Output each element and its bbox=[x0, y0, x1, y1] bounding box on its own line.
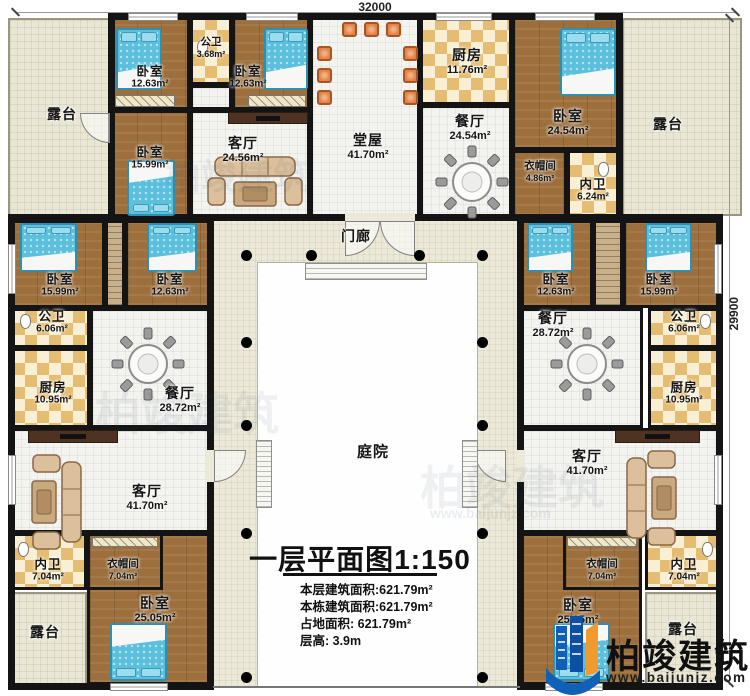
hall-chair bbox=[317, 46, 332, 61]
tv-cabinet bbox=[228, 112, 308, 124]
window bbox=[246, 13, 298, 21]
window bbox=[714, 244, 722, 294]
label-bath-bl: 内卫7.04m² bbox=[32, 557, 64, 582]
label-cloak-tr: 衣帽间4.86m² bbox=[524, 161, 556, 183]
toilet-icon bbox=[700, 314, 711, 329]
label-dining-top: 餐厅24.54m² bbox=[450, 114, 491, 142]
hall-chair bbox=[364, 22, 379, 37]
hall-chair bbox=[403, 90, 418, 105]
column-dot bbox=[477, 528, 488, 539]
label-kitchen-top: 厨房11.76m² bbox=[447, 48, 487, 76]
wall bbox=[517, 214, 524, 450]
dimension-line-right bbox=[729, 18, 730, 685]
label-bedroom-r2: 卧室15.99m² bbox=[640, 272, 677, 297]
label-bedroom-r1: 卧室12.63m² bbox=[537, 272, 574, 297]
label-dining-r: 餐厅28.72m² bbox=[533, 311, 574, 339]
info-line: 占地面积: 621.79m² bbox=[300, 616, 433, 633]
wardrobe bbox=[92, 537, 158, 547]
label-dining-l: 餐厅28.72m² bbox=[160, 386, 201, 414]
wardrobe bbox=[248, 95, 306, 107]
toilet-icon bbox=[598, 162, 609, 177]
label-bath-top: 公卫3.68m² bbox=[197, 37, 226, 59]
closet-left bbox=[105, 220, 125, 308]
wardrobe bbox=[115, 95, 175, 107]
window bbox=[8, 244, 16, 294]
window bbox=[714, 455, 722, 505]
label-terrace-tr: 露台 bbox=[653, 117, 683, 133]
column-dot bbox=[477, 672, 488, 683]
info-line: 本层建筑面积:621.79m² bbox=[300, 582, 433, 599]
label-bedroom-tr: 卧室24.54m² bbox=[548, 109, 589, 137]
label-bedroom-tl3: 卧室15.99m² bbox=[131, 145, 168, 170]
floor-plan: 柏竣建筑 柏竣建筑 柏竣建筑 www.baijunjz.com 露台 卧室12.… bbox=[0, 0, 750, 696]
hall-chair bbox=[342, 22, 357, 37]
window bbox=[128, 13, 178, 21]
label-courtyard: 庭院 bbox=[357, 445, 389, 462]
label-cloak-br: 衣帽间7.04m² bbox=[586, 559, 618, 581]
bed bbox=[110, 623, 167, 681]
label-bedroom-tl1: 卧室12.63m² bbox=[131, 64, 168, 89]
label-porch: 门廊 bbox=[341, 229, 371, 245]
tv-cabinet bbox=[615, 430, 700, 443]
toilet-icon bbox=[18, 542, 29, 557]
sofa-set bbox=[22, 452, 84, 552]
steps bbox=[305, 263, 427, 280]
hall-chair bbox=[403, 68, 418, 83]
window bbox=[436, 13, 492, 21]
dining-table bbox=[435, 145, 509, 219]
label-bedroom-l1: 卧室15.99m² bbox=[41, 272, 78, 297]
hall-chair bbox=[317, 68, 332, 83]
watermark-faint-url: www.baijunjz.com bbox=[430, 505, 551, 521]
plan-info: 本层建筑面积:621.79m² 本栋建筑面积:621.79m² 占地面积: 62… bbox=[300, 582, 433, 650]
toilet-icon bbox=[702, 542, 713, 557]
room-hallway-top bbox=[190, 85, 232, 110]
bed bbox=[645, 223, 692, 272]
label-kitchen-r: 厨房10.95m² bbox=[665, 380, 702, 405]
column-dot bbox=[477, 250, 488, 261]
bed bbox=[527, 223, 573, 272]
label-bedroom-l2: 卧室12.63m² bbox=[151, 272, 188, 297]
label-bath-br: 内卫7.04m² bbox=[668, 557, 700, 582]
column-dot bbox=[241, 672, 252, 683]
brand-url: www.baijunjz.com bbox=[606, 670, 747, 685]
toilet-icon bbox=[20, 314, 31, 329]
column-dot bbox=[241, 250, 252, 261]
steps bbox=[256, 440, 272, 508]
closet-right bbox=[593, 220, 623, 308]
label-living-tl: 客厅24.56m² bbox=[223, 136, 264, 164]
sofa-set bbox=[624, 448, 686, 548]
column-dot bbox=[241, 337, 252, 348]
label-living-r: 客厅41.70m² bbox=[567, 449, 608, 477]
label-bath-r: 公卫6.06m² bbox=[668, 309, 700, 334]
dimension-top: 32000 bbox=[358, 0, 391, 14]
column-dot bbox=[414, 250, 425, 261]
label-kitchen-l: 厨房10.95m² bbox=[34, 380, 71, 405]
window bbox=[110, 683, 168, 691]
label-hall: 堂屋41.70m² bbox=[348, 133, 389, 161]
label-bedroom-tl2: 卧室12.63m² bbox=[229, 64, 266, 89]
label-bath-l: 公卫6.06m² bbox=[36, 309, 68, 334]
window bbox=[535, 13, 595, 21]
wall bbox=[207, 482, 214, 690]
label-bath-tr: 内卫6.24m² bbox=[577, 177, 609, 202]
label-bedroom-bl: 卧室25.05m² bbox=[135, 596, 176, 624]
title-rule bbox=[283, 573, 437, 576]
hall-chair bbox=[317, 90, 332, 105]
hall-chair bbox=[403, 46, 418, 61]
plan-title: 一层平面图1:150 bbox=[249, 538, 471, 578]
window bbox=[8, 455, 16, 505]
wall bbox=[616, 13, 623, 220]
label-living-l: 客厅41.70m² bbox=[127, 484, 168, 512]
dimension-right: 29900 bbox=[727, 297, 741, 330]
hall-chair bbox=[386, 22, 401, 37]
bed bbox=[20, 223, 77, 272]
column-dot bbox=[477, 337, 488, 348]
courtyard-edge bbox=[213, 686, 520, 688]
bed bbox=[264, 28, 308, 90]
label-terrace-bl: 露台 bbox=[30, 625, 60, 641]
column-dot bbox=[306, 250, 317, 261]
info-line: 本栋建筑面积:621.79m² bbox=[300, 599, 433, 616]
bed bbox=[147, 223, 197, 272]
bed bbox=[560, 28, 616, 96]
label-terrace-tl: 露台 bbox=[47, 107, 77, 123]
label-cloak-bl: 衣帽间7.04m² bbox=[107, 559, 139, 581]
baijun-logo-icon bbox=[542, 610, 604, 696]
column-dot bbox=[477, 420, 488, 431]
info-line: 层高: 3.9m bbox=[300, 633, 433, 650]
